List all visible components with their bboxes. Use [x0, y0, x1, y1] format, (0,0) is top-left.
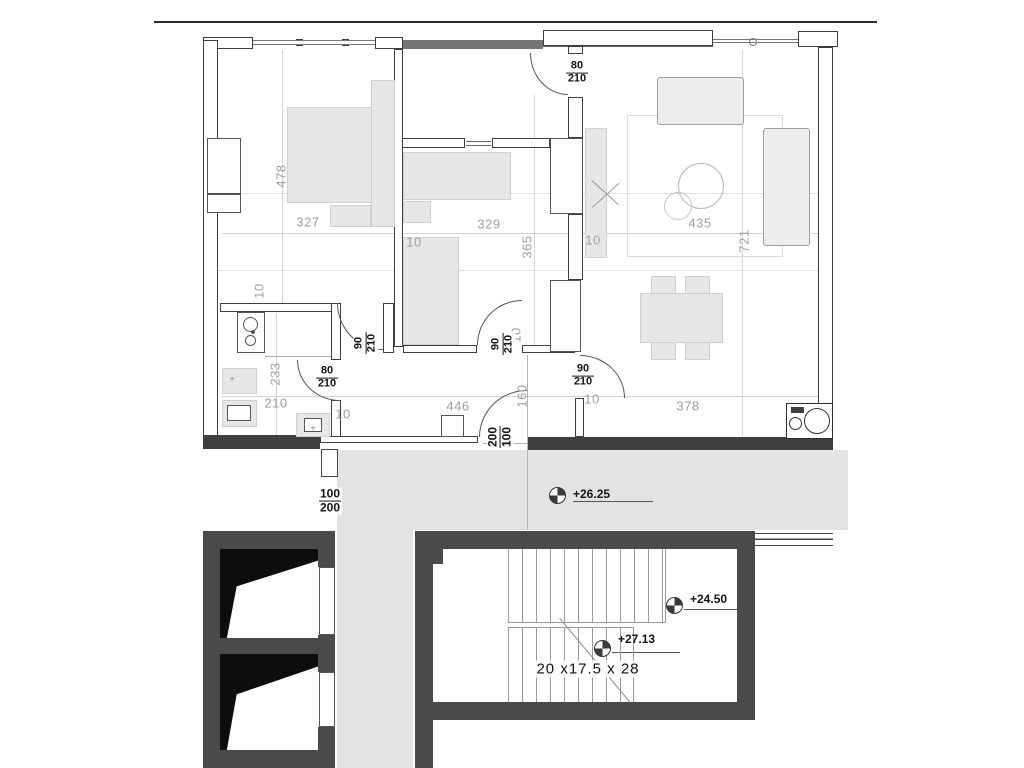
sofa	[657, 77, 744, 125]
wall	[203, 531, 335, 549]
wall	[203, 549, 220, 768]
size-value: 200	[487, 426, 500, 448]
line	[203, 270, 833, 271]
wall	[403, 40, 543, 49]
wall	[737, 549, 755, 720]
furniture	[640, 293, 723, 343]
dimension-label: 329	[477, 217, 500, 232]
dimension-label: 210	[264, 396, 287, 411]
elevation-label: +27.13	[618, 632, 655, 646]
door-swing-arc	[530, 53, 568, 95]
dimension-label: 160	[515, 384, 530, 407]
door-size-label: 90210	[354, 331, 379, 355]
wall	[568, 97, 583, 138]
wall	[320, 436, 478, 443]
dimension-label: 478	[274, 164, 289, 187]
dimension-label: 721	[737, 229, 752, 252]
furniture	[651, 276, 676, 294]
dimension-label: 10	[335, 407, 350, 422]
stair-treads	[508, 549, 666, 622]
sofa	[763, 128, 810, 246]
window-size-label: 200100	[487, 425, 514, 449]
furniture	[330, 205, 371, 227]
wall	[318, 727, 335, 768]
wall	[568, 46, 583, 54]
size-value: 90	[572, 364, 594, 376]
circle	[789, 417, 802, 430]
furniture	[403, 237, 459, 345]
size-value: 90	[491, 333, 503, 355]
dimension-label: 365	[520, 235, 535, 258]
line	[466, 141, 491, 142]
stair-formula: 20 x17.5 x 28	[534, 661, 641, 678]
dimension-label: 10	[252, 283, 267, 298]
size-value: 100	[500, 426, 514, 448]
fixture	[227, 405, 251, 421]
dimension-label: 435	[688, 216, 711, 231]
wall	[575, 398, 584, 437]
furniture	[403, 152, 511, 200]
dimension-label: 327	[296, 215, 319, 230]
wall	[203, 40, 218, 448]
size-value: 210	[366, 332, 379, 354]
elevator-shaft	[220, 654, 318, 750]
wall	[375, 37, 403, 49]
elevator-shaft-cut	[220, 654, 318, 750]
fixture	[550, 138, 583, 214]
corridor-floor	[337, 530, 413, 768]
plus-mark: +	[229, 375, 235, 386]
dimension-label: 10	[585, 233, 600, 248]
size-value: 210	[503, 333, 516, 355]
circle	[749, 38, 757, 46]
circle	[804, 408, 830, 434]
elevation-label: +26.25	[573, 487, 610, 501]
dimension-label: 446	[446, 399, 469, 414]
wall	[203, 638, 335, 654]
fixture	[550, 280, 581, 352]
fixture	[207, 194, 241, 213]
wall	[318, 549, 335, 567]
wall	[543, 30, 713, 46]
line	[265, 356, 331, 357]
wall	[415, 531, 755, 549]
size-value: 80	[566, 61, 588, 73]
size-value: 90	[354, 332, 366, 354]
wall	[798, 31, 838, 47]
elevator-shaft	[220, 549, 318, 638]
wall	[433, 549, 443, 564]
circle	[245, 335, 256, 346]
fixture	[441, 415, 464, 437]
size-value: 210	[316, 378, 338, 391]
stair-railing	[755, 533, 833, 546]
wall	[492, 138, 550, 148]
furniture	[651, 342, 676, 360]
wall	[203, 435, 320, 449]
furniture	[685, 276, 710, 294]
door-size-label: 80210	[565, 61, 589, 86]
dimension-label: 10	[584, 392, 599, 407]
elevation-label: +24.50	[690, 592, 727, 606]
fixture	[207, 138, 241, 194]
wall	[203, 750, 335, 768]
line	[534, 95, 535, 345]
size-value: 80	[316, 366, 338, 378]
line	[466, 145, 491, 146]
circle	[251, 330, 255, 334]
wall	[403, 345, 477, 353]
size-value: 100	[319, 488, 341, 501]
fixture	[319, 567, 335, 635]
wall	[220, 303, 338, 312]
plus-mark: +	[310, 424, 316, 435]
furniture	[685, 342, 710, 360]
dimension-label: 378	[676, 399, 699, 414]
size-value: 200	[319, 501, 341, 515]
wall	[415, 702, 755, 720]
wall	[402, 138, 465, 148]
size-value: 210	[572, 376, 594, 389]
wall	[383, 303, 394, 353]
fixture	[319, 672, 335, 727]
window	[253, 40, 375, 45]
wall	[415, 549, 433, 768]
furniture	[403, 201, 431, 223]
furniture	[222, 368, 257, 394]
elevator-shaft-cut	[220, 549, 318, 638]
door-size-label: 90210	[571, 364, 595, 389]
line	[508, 622, 666, 623]
level-marker-icon	[666, 597, 683, 614]
window-size-label: 100200	[318, 488, 342, 515]
dimension-label: 233	[268, 362, 283, 385]
furniture	[371, 80, 395, 227]
dimension-label: 10	[406, 235, 421, 250]
wall	[568, 214, 583, 280]
size-value: 210	[566, 73, 588, 86]
line	[573, 501, 653, 502]
floor-plan-page: 4783273293654357212332104463781601010101…	[0, 0, 1024, 768]
wall	[818, 47, 833, 437]
wall	[791, 407, 804, 413]
window	[321, 449, 338, 477]
wall	[394, 49, 403, 347]
level-marker-icon	[549, 487, 566, 504]
door-size-label: 90210	[491, 332, 516, 356]
line	[154, 21, 877, 23]
level-marker-icon	[594, 640, 611, 657]
door-size-label: 80210	[315, 366, 339, 391]
line	[684, 609, 737, 610]
wall	[318, 635, 335, 672]
